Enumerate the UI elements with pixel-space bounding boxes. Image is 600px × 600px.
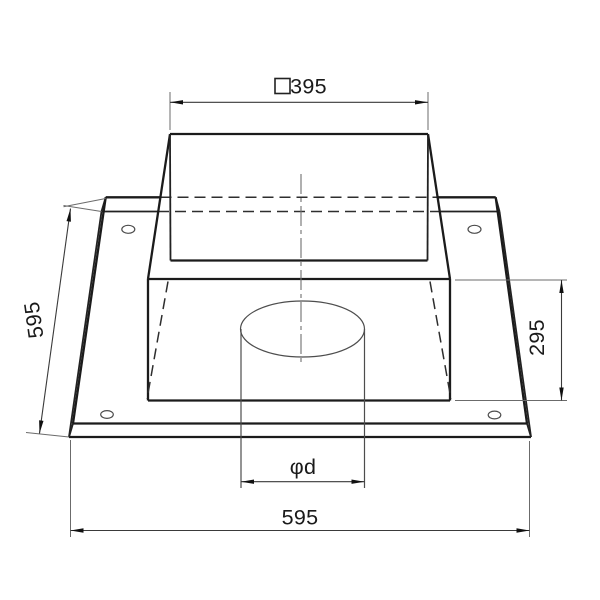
dimension-label-bottom: 595: [282, 506, 319, 530]
drawing-canvas: 395 φd 595 295 595: [0, 0, 600, 600]
base-plate-top-face: [73, 197, 527, 423]
dimension-label-diameter: φd: [290, 455, 317, 479]
collar-back-left-edge: [170, 134, 171, 261]
arrowhead-right-icon: [415, 100, 428, 104]
collar-back-right-edge: [428, 134, 429, 261]
square-symbol-icon: [275, 79, 290, 94]
extension-line: [64, 206, 102, 212]
dimension-label-top: 395: [290, 75, 327, 99]
dimension-hole-diameter: φd: [241, 455, 365, 484]
corner-hole-back-right: [468, 225, 481, 233]
arrowhead-up-icon: [559, 280, 563, 293]
extension-line: [64, 199, 106, 207]
collar-front-right-edge: [428, 134, 450, 279]
arrowhead-left-icon: [170, 100, 183, 104]
plate-right-edge: [496, 197, 527, 423]
tapered-collar: [148, 134, 450, 279]
center-hole-ellipse: [241, 301, 365, 357]
corner-hole-back-left: [122, 225, 135, 233]
hidden-inner-edge-left: [147, 282, 168, 400]
hidden-inner-edge-right: [430, 282, 451, 400]
extension-line: [26, 433, 69, 438]
arrowhead-down-icon: [39, 420, 43, 433]
arrowhead-down-icon: [559, 388, 563, 401]
arrowhead-right-icon: [352, 480, 365, 484]
collar-front-left-edge: [148, 134, 170, 279]
technical-drawing: 395 φd 595 295 595: [0, 0, 600, 600]
dimension-label-left: 595: [20, 300, 49, 340]
arrowhead-left-icon: [241, 480, 254, 484]
dimension-label-right: 295: [525, 319, 549, 356]
upstand-box: [147, 279, 451, 401]
plate-bottom-left-edge: [69, 212, 102, 438]
dimension-top-width: 395: [170, 75, 428, 131]
plate-left-edge: [73, 197, 106, 423]
corner-hole-front-left: [101, 411, 114, 419]
center-hole: [241, 174, 365, 488]
arrowhead-left-icon: [71, 528, 84, 532]
arrowhead-up-icon: [67, 209, 71, 222]
arrowhead-right-icon: [517, 528, 530, 532]
corner-hole-front-right: [488, 411, 501, 419]
dimension-left-depth: 595: [20, 199, 106, 438]
